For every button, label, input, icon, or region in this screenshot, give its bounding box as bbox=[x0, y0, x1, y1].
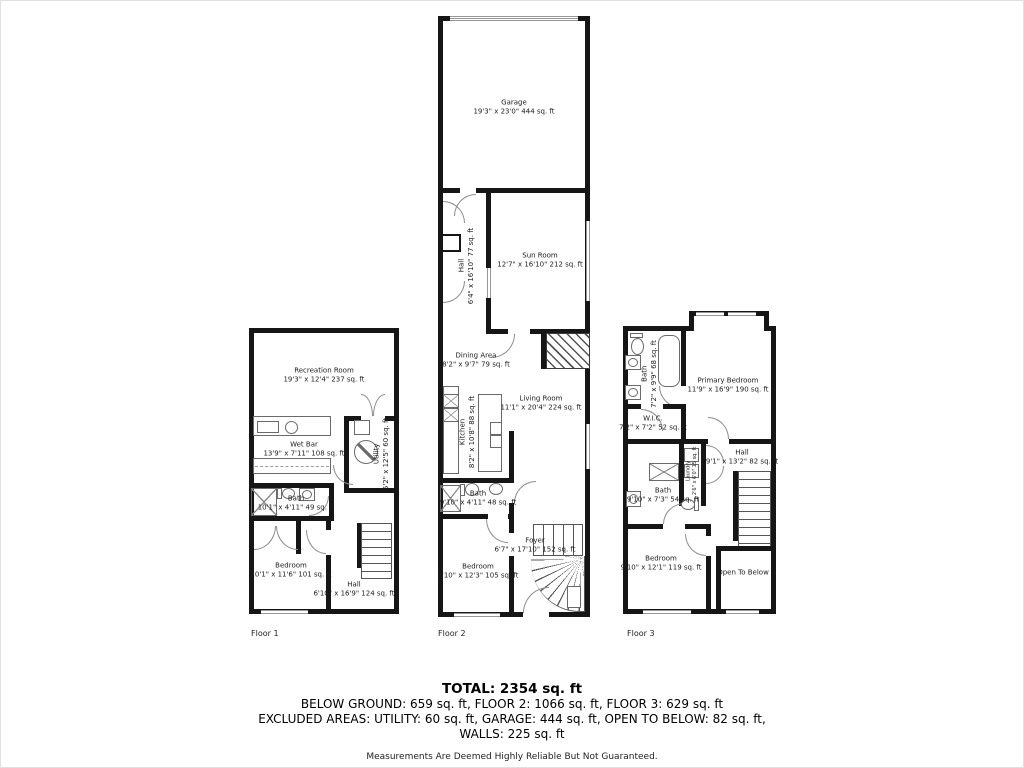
room-dims: 6'7" x 17'10" 152 sq. ft bbox=[494, 546, 575, 555]
room-dims: 10'1" x 4'11" 49 sq. ft bbox=[258, 504, 335, 513]
wall bbox=[623, 404, 641, 409]
wall bbox=[438, 188, 460, 193]
hall-door-arc bbox=[333, 465, 353, 485]
room-name: Living Room bbox=[500, 395, 581, 404]
room-name: Bedroom bbox=[620, 555, 701, 564]
utility-door-arc bbox=[373, 394, 385, 416]
room-label-dining: Dining Area 8'2" x 9'7" 79 sq. ft bbox=[442, 352, 510, 371]
wall bbox=[681, 331, 686, 386]
room-dims: 8'2" x 9'7" 79 sq. ft bbox=[442, 361, 510, 370]
room-dims: 9'1" x 13'2" 82 sq. ft bbox=[706, 458, 778, 467]
floor-plan-image: Recreation Room 19'3" x 12'4" 237 sq. ft… bbox=[0, 0, 1024, 768]
wall bbox=[438, 478, 514, 483]
total-area-text: TOTAL: 2354 sq. ft bbox=[1, 682, 1023, 697]
room-name: Bedroom bbox=[437, 563, 518, 572]
floor3-tag: Floor 3 bbox=[627, 629, 655, 638]
room-label-garage: Garage 19'3" x 23'0" 444 sq. ft bbox=[473, 99, 554, 118]
island-cabinet bbox=[490, 435, 502, 448]
wall bbox=[706, 556, 711, 609]
floor2-plan: Garage 19'3" x 23'0" 444 sq. ft Hall 6'4… bbox=[438, 16, 590, 617]
window bbox=[643, 610, 691, 614]
room-label-primary-bedroom: Primary Bedroom 11'9" x 16'9" 190 sq. ft bbox=[687, 377, 768, 396]
staircase bbox=[738, 471, 771, 547]
wall bbox=[716, 546, 771, 551]
room-name: Bath bbox=[641, 340, 650, 408]
walls-area-text: WALLS: 225 sq. ft bbox=[1, 727, 1023, 742]
room-name: Bath bbox=[258, 495, 335, 504]
stove-fixture bbox=[443, 408, 459, 422]
bathtub-fixture bbox=[658, 335, 680, 387]
wall bbox=[663, 404, 686, 409]
room-name: Sun Room bbox=[497, 252, 583, 261]
room-name: Recreation Room bbox=[283, 367, 364, 376]
laundry-door-arc bbox=[706, 466, 724, 484]
room-label-kitchen: Kitchen 8'2" x 10'8" 88 sq. ft bbox=[459, 396, 478, 468]
room-label-bedroom: Bedroom 9'10" x 12'1" 119 sq. ft bbox=[620, 555, 701, 574]
linen-closet bbox=[649, 463, 679, 481]
wall bbox=[729, 439, 776, 444]
wall bbox=[508, 514, 514, 519]
bedroom-door-arc bbox=[306, 530, 326, 554]
window bbox=[586, 221, 590, 301]
floor2-tag: Floor 2 bbox=[438, 629, 466, 638]
room-dims: 19'3" x 23'0" 444 sq. ft bbox=[473, 108, 554, 117]
room-label-hall: Hall 9'1" x 13'2" 82 sq. ft bbox=[706, 449, 778, 468]
room-name: Bath bbox=[627, 487, 699, 496]
wall bbox=[249, 328, 399, 333]
window bbox=[696, 312, 724, 316]
room-label-utility: Utility 5'2" x 12'5" 60 sq. ft bbox=[373, 418, 392, 490]
closet-door-arc bbox=[254, 526, 276, 550]
room-label-hall: Hall 6'10" x 16'9" 124 sq. ft bbox=[313, 581, 394, 600]
staircase bbox=[361, 523, 392, 579]
room-label-wet-bar: Wet Bar 13'9" x 7'11" 108 sq. ft bbox=[263, 441, 344, 460]
room-dims: 13'9" x 7'11" 108 sq. ft bbox=[263, 450, 344, 459]
window bbox=[728, 312, 756, 316]
floor1-tag: Floor 1 bbox=[251, 629, 279, 638]
room-name: Kitchen bbox=[459, 396, 468, 468]
wall bbox=[249, 516, 334, 521]
room-dims: 11'9" x 16'9" 190 sq. ft bbox=[687, 386, 768, 395]
room-label-foyer: Foyer 6'7" x 17'10" 152 sq. ft bbox=[494, 537, 575, 556]
room-label-hall: Hall 6'4" x 16'10" 77 sq. ft bbox=[458, 228, 477, 305]
room-dims: 7'2" x 9'9" 68 sq. ft bbox=[650, 340, 659, 408]
room-label-bath: Bath 10'1" x 4'11" 49 sq. ft bbox=[258, 495, 335, 514]
disclaimer-text: Measurements Are Deemed Highly Reliable … bbox=[1, 752, 1023, 762]
wall bbox=[476, 188, 590, 193]
room-label-bath: Bath 9'10" x 4'11" 48 sq. ft bbox=[440, 490, 517, 509]
room-name: Bedroom bbox=[250, 562, 331, 571]
room-dims: 19'3" x 12'4" 237 sq. ft bbox=[283, 376, 364, 385]
floor3-plan: Bath 7'2" x 9'9" 68 sq. ft Primary Bedro… bbox=[623, 311, 776, 614]
room-dims: 9'10" x 12'1" 119 sq. ft bbox=[620, 564, 701, 573]
room-label-recreation: Recreation Room 19'3" x 12'4" 237 sq. ft bbox=[283, 367, 364, 386]
room-dims: 11'1" x 20'4" 224 sq. ft bbox=[500, 404, 581, 413]
room-dims: 6'10" x 16'9" 124 sq. ft bbox=[313, 590, 394, 599]
bedroom-door-arc bbox=[685, 534, 706, 556]
room-dims: 8'2" x 10'8" 88 sq. ft bbox=[468, 396, 477, 468]
room-dims: 6'4" x 16'10" 77 sq. ft bbox=[467, 228, 476, 305]
utility-door-arc bbox=[361, 394, 373, 416]
room-dims: 10'1" x 11'6" 101 sq. ft bbox=[250, 571, 331, 580]
room-name: Garage bbox=[473, 99, 554, 108]
room-name: Foyer bbox=[494, 537, 575, 546]
sink-fixture bbox=[628, 358, 638, 367]
window bbox=[261, 610, 308, 614]
room-label-bedroom: Bedroom 9'10" x 12'3" 105 sq. ft bbox=[437, 563, 518, 582]
room-label-bedroom: Bedroom 10'1" x 11'6" 101 sq. ft bbox=[250, 562, 331, 581]
stove-fixture bbox=[443, 394, 459, 408]
room-label-sun-room: Sun Room 12'7" x 16'10" 212 sq. ft bbox=[497, 252, 583, 271]
room-dims: 9'10" x 7'3" 54 sq. ft bbox=[627, 496, 699, 505]
room-name: Wet Bar bbox=[263, 441, 344, 450]
room-name: Primary Bedroom bbox=[687, 377, 768, 386]
wall bbox=[706, 529, 711, 536]
floor1-plan: Recreation Room 19'3" x 12'4" 237 sq. ft… bbox=[249, 328, 399, 614]
room-dims: 5'2" x 12'5" 60 sq. ft bbox=[382, 418, 391, 490]
garage-door bbox=[450, 16, 578, 21]
entry-closet bbox=[567, 586, 581, 608]
front-door-arc bbox=[523, 587, 549, 613]
room-dims: 9'10" x 12'3" 105 sq. ft bbox=[437, 572, 518, 581]
counter-dash bbox=[255, 466, 329, 467]
window bbox=[487, 268, 491, 298]
bar-sink bbox=[285, 421, 298, 434]
wall bbox=[623, 439, 708, 444]
wall bbox=[623, 524, 663, 529]
room-name: Open To Below bbox=[717, 568, 769, 577]
room-label-bath-upper: Bath 7'2" x 9'9" 68 sq. ft bbox=[641, 340, 660, 408]
window bbox=[726, 610, 759, 614]
window bbox=[586, 424, 590, 469]
primary-door-arc bbox=[708, 417, 729, 439]
wall bbox=[438, 514, 488, 519]
room-name: Hall bbox=[706, 449, 778, 458]
wall bbox=[585, 16, 590, 617]
sink-fixture bbox=[628, 388, 638, 397]
area-summary: TOTAL: 2354 sq. ft BELOW GROUND: 659 sq.… bbox=[1, 682, 1023, 762]
room-label-open-to-below: Open To Below bbox=[717, 568, 769, 577]
closet-door-arc bbox=[276, 526, 298, 550]
wall bbox=[326, 521, 331, 530]
room-name: Hall bbox=[458, 228, 467, 305]
island-cabinet bbox=[490, 422, 502, 435]
bath-door-arc bbox=[514, 481, 536, 503]
floor-areas-text: BELOW GROUND: 659 sq. ft, FLOOR 2: 1066 … bbox=[1, 697, 1023, 712]
room-name: Hall bbox=[313, 581, 394, 590]
wall bbox=[486, 298, 491, 329]
wall bbox=[771, 326, 776, 614]
room-label-wic: W.I.C. 7'2" x 7'2" 52 sq. ft bbox=[619, 415, 687, 434]
wall bbox=[394, 328, 399, 614]
stairwell-hatch bbox=[546, 333, 590, 369]
window bbox=[454, 613, 500, 617]
room-name: Utility bbox=[373, 418, 382, 490]
room-dims: 7'2" x 7'2" 52 sq. ft bbox=[619, 424, 687, 433]
room-label-bath-lower: Bath 9'10" x 7'3" 54 sq. ft bbox=[627, 487, 699, 506]
room-dims: 9'10" x 4'11" 48 sq. ft bbox=[440, 499, 517, 508]
room-name: Bath bbox=[440, 490, 517, 499]
room-label-living: Living Room 11'1" x 20'4" 224 sq. ft bbox=[500, 395, 581, 414]
wall bbox=[438, 16, 443, 617]
room-name: Dining Area bbox=[442, 352, 510, 361]
counter-cabinet bbox=[257, 421, 279, 433]
wall bbox=[486, 193, 491, 268]
excluded-areas-text: EXCLUDED AREAS: UTILITY: 60 sq. ft, GARA… bbox=[1, 712, 1023, 727]
room-dims: 12'7" x 16'10" 212 sq. ft bbox=[497, 261, 583, 270]
wall bbox=[509, 431, 514, 481]
utility-cabinet bbox=[354, 420, 370, 435]
room-name: W.I.C. bbox=[619, 415, 687, 424]
